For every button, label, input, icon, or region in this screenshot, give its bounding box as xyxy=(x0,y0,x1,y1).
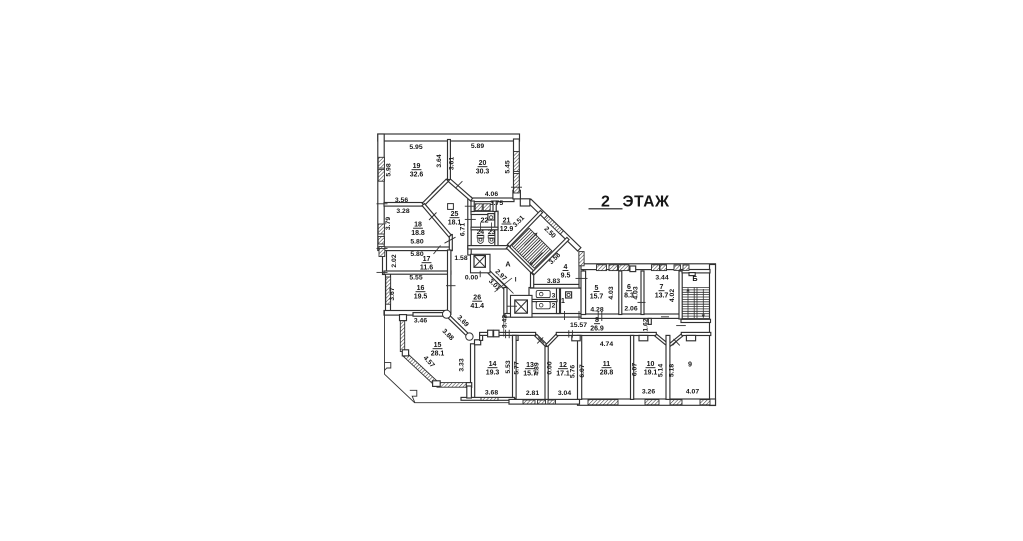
svg-text:19.3: 19.3 xyxy=(486,370,500,377)
svg-text:15: 15 xyxy=(434,342,442,349)
svg-text:3.33: 3.33 xyxy=(459,358,466,371)
svg-text:9: 9 xyxy=(688,360,692,369)
svg-text:2: 2 xyxy=(601,194,610,211)
svg-text:3.67: 3.67 xyxy=(389,287,396,300)
svg-text:6.07: 6.07 xyxy=(579,364,586,377)
svg-text:4.06: 4.06 xyxy=(485,191,498,198)
svg-text:14: 14 xyxy=(489,361,497,368)
svg-text:5.95: 5.95 xyxy=(409,144,422,151)
svg-text:8: 8 xyxy=(595,317,599,324)
svg-text:19: 19 xyxy=(413,163,421,170)
svg-text:5.80: 5.80 xyxy=(410,251,423,258)
svg-text:ЭТАЖ: ЭТАЖ xyxy=(623,194,671,211)
svg-text:3.56: 3.56 xyxy=(395,197,408,204)
svg-text:5: 5 xyxy=(595,285,599,292)
svg-text:23: 23 xyxy=(488,229,496,236)
svg-text:3.46: 3.46 xyxy=(414,318,427,325)
svg-text:12.9: 12.9 xyxy=(500,226,514,233)
svg-text:3.83: 3.83 xyxy=(547,278,560,285)
svg-text:17.1: 17.1 xyxy=(556,371,570,378)
svg-text:3.44: 3.44 xyxy=(655,275,668,282)
svg-text:5.77: 5.77 xyxy=(514,361,521,374)
svg-text:5.45: 5.45 xyxy=(505,160,512,173)
svg-text:3.42: 3.42 xyxy=(502,315,509,328)
svg-text:4.03: 4.03 xyxy=(633,286,640,299)
svg-text:32.6: 32.6 xyxy=(410,172,424,179)
svg-text:3.79: 3.79 xyxy=(385,217,392,230)
svg-text:5.53: 5.53 xyxy=(505,360,512,373)
svg-text:1: 1 xyxy=(561,298,565,305)
svg-text:4.03: 4.03 xyxy=(608,286,615,299)
svg-text:15.57: 15.57 xyxy=(570,322,587,329)
svg-text:30.3: 30.3 xyxy=(476,169,490,176)
svg-text:22: 22 xyxy=(481,216,489,225)
svg-text:2.02: 2.02 xyxy=(391,254,398,267)
svg-text:5.14: 5.14 xyxy=(658,364,665,377)
svg-text:13.7: 13.7 xyxy=(655,293,669,300)
svg-text:12: 12 xyxy=(559,362,567,369)
svg-text:4.74: 4.74 xyxy=(600,341,613,348)
svg-text:17: 17 xyxy=(423,256,431,263)
svg-text:5.76: 5.76 xyxy=(570,365,577,378)
svg-text:28.1: 28.1 xyxy=(431,351,445,358)
svg-text:20: 20 xyxy=(479,160,487,167)
svg-text:5.18: 5.18 xyxy=(669,364,676,377)
svg-text:18.8: 18.8 xyxy=(411,230,425,237)
svg-text:4.02: 4.02 xyxy=(669,289,676,302)
svg-text:4: 4 xyxy=(564,264,568,271)
svg-text:15.7: 15.7 xyxy=(590,293,604,300)
svg-text:3.61: 3.61 xyxy=(449,157,456,170)
svg-text:11: 11 xyxy=(603,361,611,368)
svg-text:4.07: 4.07 xyxy=(686,389,699,396)
svg-text:5.98: 5.98 xyxy=(386,163,393,176)
svg-text:24: 24 xyxy=(477,229,485,236)
svg-text:2: 2 xyxy=(552,303,556,310)
svg-text:3: 3 xyxy=(552,292,556,299)
svg-text:Б: Б xyxy=(692,274,697,283)
svg-text:1.58: 1.58 xyxy=(454,255,467,262)
svg-text:25: 25 xyxy=(451,211,459,218)
svg-text:26.9: 26.9 xyxy=(590,326,604,333)
svg-text:9.5: 9.5 xyxy=(561,272,571,279)
svg-text:2.81: 2.81 xyxy=(526,390,539,397)
svg-text:5.80: 5.80 xyxy=(410,239,423,246)
svg-text:18: 18 xyxy=(414,222,422,229)
svg-text:6.07: 6.07 xyxy=(632,363,639,376)
svg-text:11.6: 11.6 xyxy=(420,265,433,272)
svg-text:26: 26 xyxy=(473,295,481,302)
svg-text:19.1: 19.1 xyxy=(644,370,658,377)
svg-text:3.68: 3.68 xyxy=(485,390,498,397)
svg-text:4.28: 4.28 xyxy=(590,307,603,314)
svg-text:3.28: 3.28 xyxy=(396,208,409,215)
svg-text:6.71: 6.71 xyxy=(460,223,467,236)
svg-text:1.62: 1.62 xyxy=(643,318,650,331)
svg-text:3.64: 3.64 xyxy=(436,154,443,167)
svg-text:5.89: 5.89 xyxy=(471,143,484,150)
svg-text:2.06: 2.06 xyxy=(624,306,637,313)
svg-text:4.89: 4.89 xyxy=(534,362,541,375)
svg-text:21: 21 xyxy=(503,217,511,224)
svg-text:41.4: 41.4 xyxy=(470,303,484,310)
svg-text:3.26: 3.26 xyxy=(642,389,655,396)
svg-text:3.75: 3.75 xyxy=(490,200,503,207)
svg-text:5.55: 5.55 xyxy=(409,275,422,282)
svg-text:19.5: 19.5 xyxy=(414,294,428,301)
svg-text:7: 7 xyxy=(660,284,664,291)
svg-text:A: A xyxy=(505,260,510,269)
svg-text:28.8: 28.8 xyxy=(600,370,614,377)
svg-text:16: 16 xyxy=(417,285,425,292)
svg-text:I: I xyxy=(515,277,517,284)
svg-text:0.00: 0.00 xyxy=(465,275,478,282)
svg-text:6: 6 xyxy=(627,284,631,291)
svg-text:0.00: 0.00 xyxy=(547,361,554,374)
svg-text:10: 10 xyxy=(647,361,655,368)
svg-text:3.04: 3.04 xyxy=(558,390,571,397)
